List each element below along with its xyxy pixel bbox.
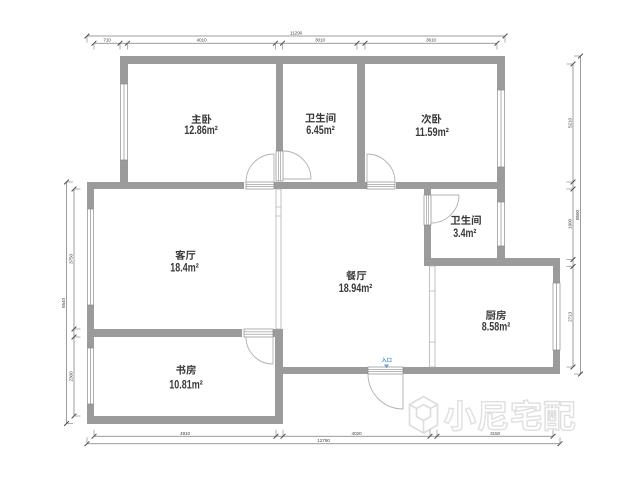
svg-text:3750: 3750 (68, 253, 74, 264)
svg-text:1900: 1900 (567, 218, 573, 229)
svg-text:710: 710 (103, 38, 111, 44)
svg-text:3610: 3610 (426, 38, 437, 44)
svg-text:5210: 5210 (567, 117, 573, 128)
svg-text:3.4m²: 3.4m² (453, 226, 476, 240)
svg-text:18.94m²: 18.94m² (339, 281, 373, 295)
svg-text:4020: 4020 (351, 431, 362, 437)
svg-text:12790: 12790 (317, 438, 330, 444)
svg-text:4910: 4910 (180, 431, 191, 437)
svg-text:6540: 6540 (61, 297, 67, 308)
svg-text:11290: 11290 (290, 30, 303, 36)
svg-text:10.81m²: 10.81m² (169, 378, 203, 392)
svg-text:2713: 2713 (567, 311, 573, 322)
svg-text:2300: 2300 (68, 371, 74, 382)
svg-text:11.59m²: 11.59m² (415, 125, 449, 139)
svg-text:8.58m²: 8.58m² (482, 320, 510, 334)
svg-text:3150: 3150 (490, 431, 501, 437)
svg-text:18.4m²: 18.4m² (170, 261, 198, 275)
svg-text:8590: 8590 (575, 209, 581, 220)
svg-text:3010: 3010 (315, 38, 326, 44)
svg-text:12.86m²: 12.86m² (184, 123, 218, 137)
svg-text:4010: 4010 (196, 38, 207, 44)
svg-text:6.45m²: 6.45m² (306, 123, 334, 137)
